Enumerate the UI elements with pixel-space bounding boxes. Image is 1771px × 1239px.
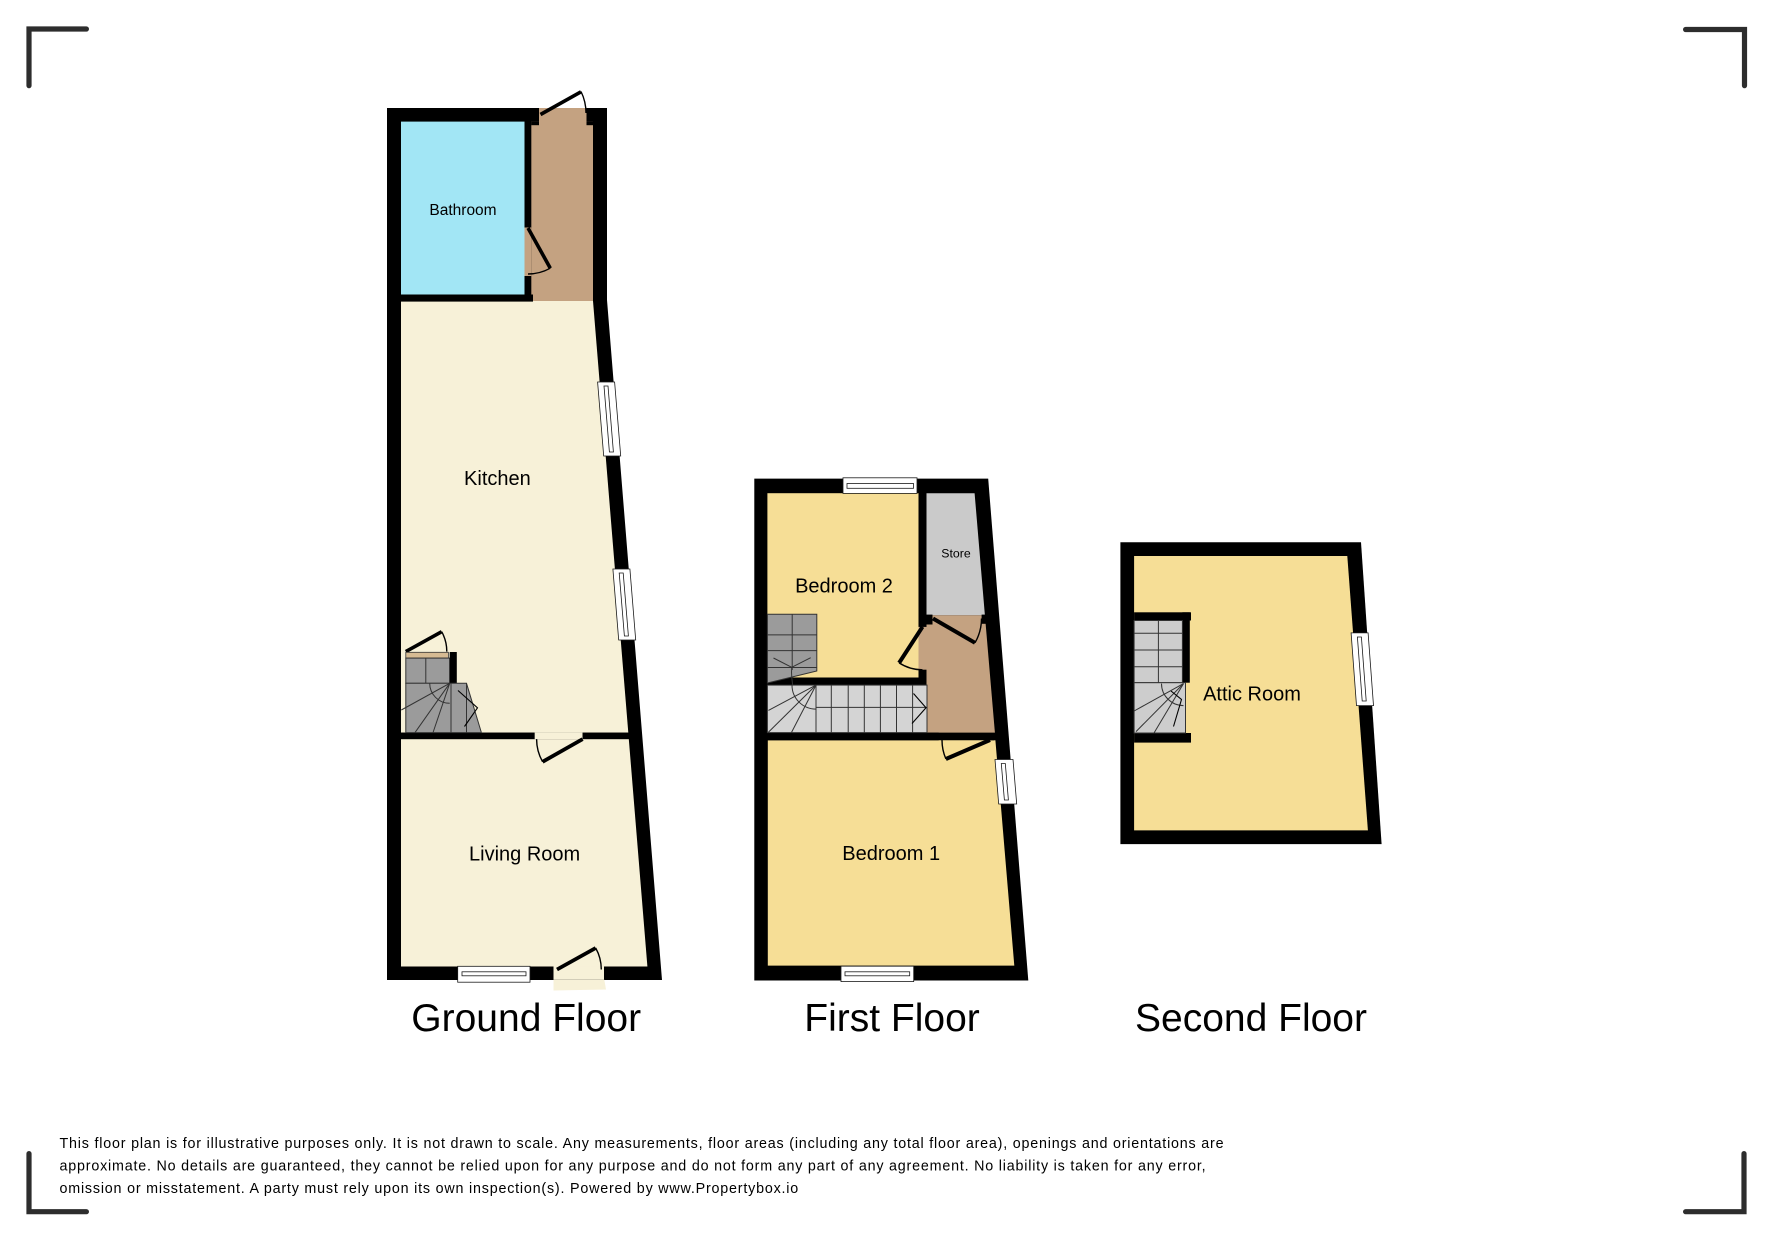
svg-text:omission or misstatement. A pa: omission or misstatement. A party must r… xyxy=(60,1181,800,1197)
svg-text:Store: Store xyxy=(941,546,971,560)
svg-text:Bedroom 1: Bedroom 1 xyxy=(842,843,940,865)
svg-text:First Floor: First Floor xyxy=(804,997,980,1040)
svg-text:Kitchen: Kitchen xyxy=(464,468,531,490)
svg-text:Bedroom 2: Bedroom 2 xyxy=(795,576,893,598)
svg-text:Attic Room: Attic Room xyxy=(1203,684,1301,706)
svg-text:approximate. No details are gu: approximate. No details are guaranteed, … xyxy=(60,1159,1207,1175)
svg-text:Ground Floor: Ground Floor xyxy=(411,997,641,1040)
svg-text:Living Room: Living Room xyxy=(469,844,580,866)
svg-text:This floor plan is for illustr: This floor plan is for illustrative purp… xyxy=(60,1136,1225,1152)
svg-text:Second Floor: Second Floor xyxy=(1135,997,1367,1040)
svg-text:Bathroom: Bathroom xyxy=(429,202,496,219)
